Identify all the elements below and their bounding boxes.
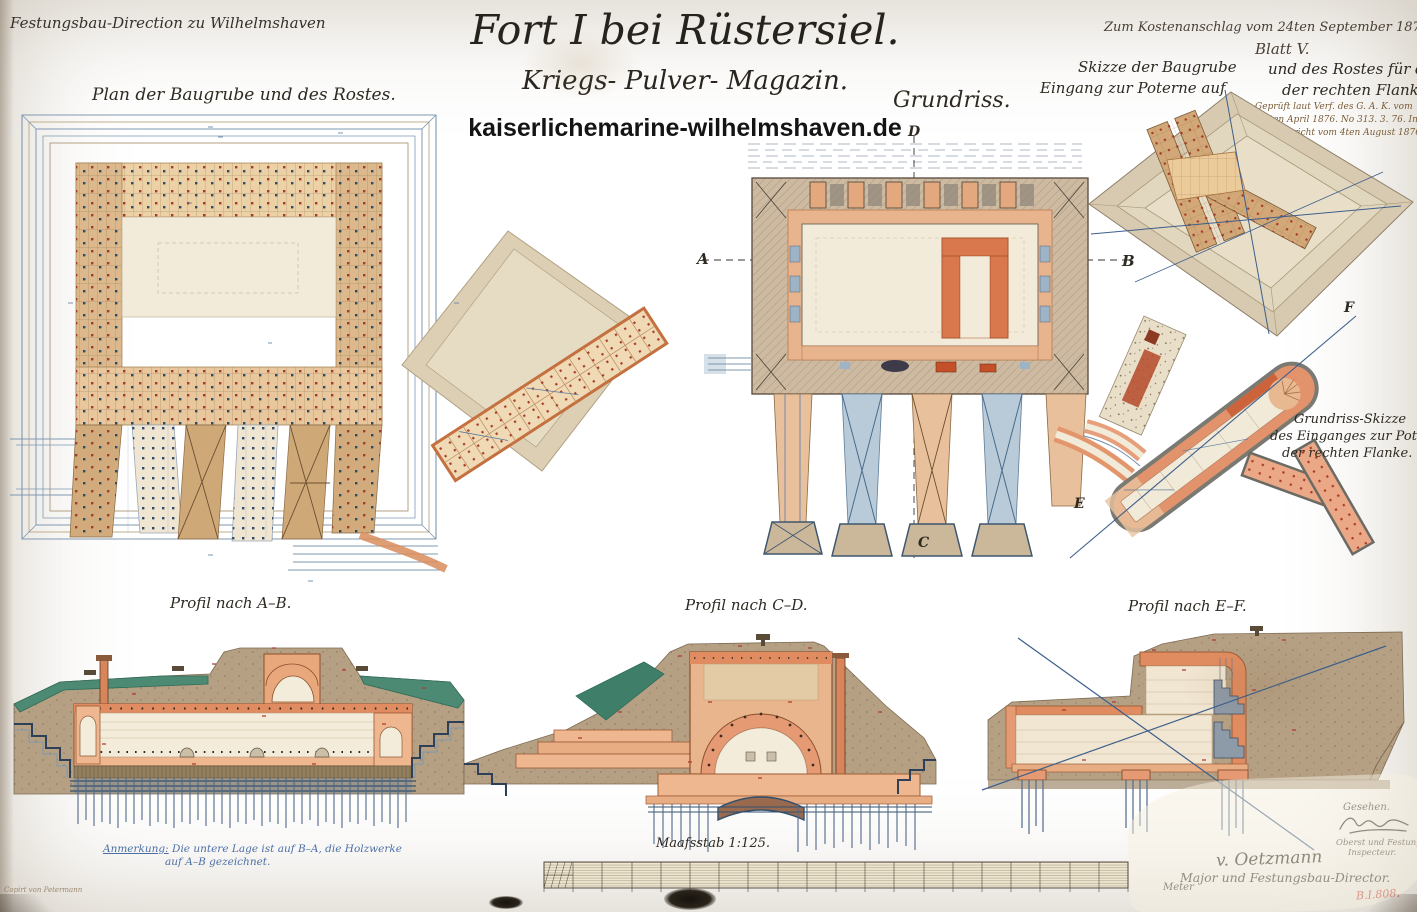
profile-ab-drawing — [12, 624, 467, 846]
remark-text1: Die untere Lage ist auf B–A, die Holzwer… — [169, 843, 402, 855]
director-signature: v. Oetzmann — [1216, 847, 1323, 871]
sheet-subtitle: Kriegs- Pulver- Magazin. — [450, 66, 920, 96]
pier-strips — [70, 425, 382, 541]
grundriss-title: Grundriss. — [893, 88, 1011, 113]
magazine-walls — [752, 178, 1088, 394]
glacis-hatching — [748, 144, 1082, 168]
section-letter-f: F — [1344, 300, 1354, 316]
top-arch-niche — [264, 654, 320, 704]
gallery-structure — [74, 704, 412, 766]
remark-note-line2: auf A–B gezeichnet. — [165, 856, 270, 868]
section-letter-c: C — [918, 535, 929, 551]
left-step-extension — [704, 354, 752, 374]
office-note: Festungsbau-Direction zu Wilhelmshaven — [10, 14, 326, 32]
ref-note-line2: Blatt V. — [1255, 40, 1310, 58]
scale-label: Maafsstab 1:125. — [656, 836, 770, 851]
poterne-title-line3: der rechten Flanke. — [1282, 446, 1412, 461]
grundriss-piers — [764, 394, 1086, 556]
foundation-piles — [70, 766, 416, 828]
archive-stamp: B.I.808. — [1356, 886, 1401, 902]
section-letter-b: B — [1122, 252, 1135, 270]
poterne-title-line1: Grundriss-Skizze — [1294, 412, 1406, 427]
vent-cap — [756, 634, 770, 640]
poterne-title-line2: des Einganges zur Poterne — [1270, 429, 1417, 444]
speckled-strip — [1099, 316, 1186, 435]
ground-band — [988, 780, 1390, 789]
director-title: Major und Festungsbau-Director. — [1180, 870, 1390, 885]
poterne-plan-drawing — [1056, 306, 1417, 584]
profile-cd-drawing — [458, 612, 943, 855]
remark-note-line1: Anmerkung: Die untere Lage ist auf B–A, … — [103, 843, 402, 855]
photo-corner-shadow — [0, 894, 60, 912]
sketch-title-part2: und des Rostes für den — [1268, 60, 1417, 78]
inspector-title-line1: Oberst und Festungs- — [1336, 838, 1417, 848]
sketch-title-part1: Skizze der Baugrube — [1078, 58, 1237, 76]
scale-bar — [516, 856, 1161, 906]
section-letter-e: E — [1074, 496, 1085, 512]
timber-raft-grid — [76, 163, 382, 425]
baugrube-plan-title: Plan der Baugrube und des Rostes. — [92, 85, 396, 105]
vaulted-chamber — [690, 652, 832, 774]
section-letter-d: D — [908, 124, 920, 140]
copy-note: Copirt von Petermann — [4, 886, 82, 894]
remark-intro: Anmerkung: — [103, 843, 169, 855]
entrance-excavation-sketch — [1083, 86, 1417, 338]
junction-curve — [1056, 434, 1130, 476]
section-letter-a: A — [697, 250, 709, 268]
inspector-title-line2: Inspecteur. — [1348, 848, 1396, 858]
inner-orange-structure — [942, 238, 1008, 338]
sheet-title: Fort I bei Rüstersiel. — [450, 6, 920, 54]
ref-note-line1: Zum Kostenanschlag vom 24ten September 1… — [1104, 20, 1417, 35]
drawing-sheet: Festungsbau-Direction zu Wilhelmshaven F… — [0, 0, 1417, 912]
profile-ab-label: Profil nach A–B. — [170, 594, 291, 612]
inspector-signature-flourish — [1336, 811, 1412, 837]
baugrube-plan-drawing — [8, 103, 688, 608]
vent-cap — [1250, 626, 1263, 631]
